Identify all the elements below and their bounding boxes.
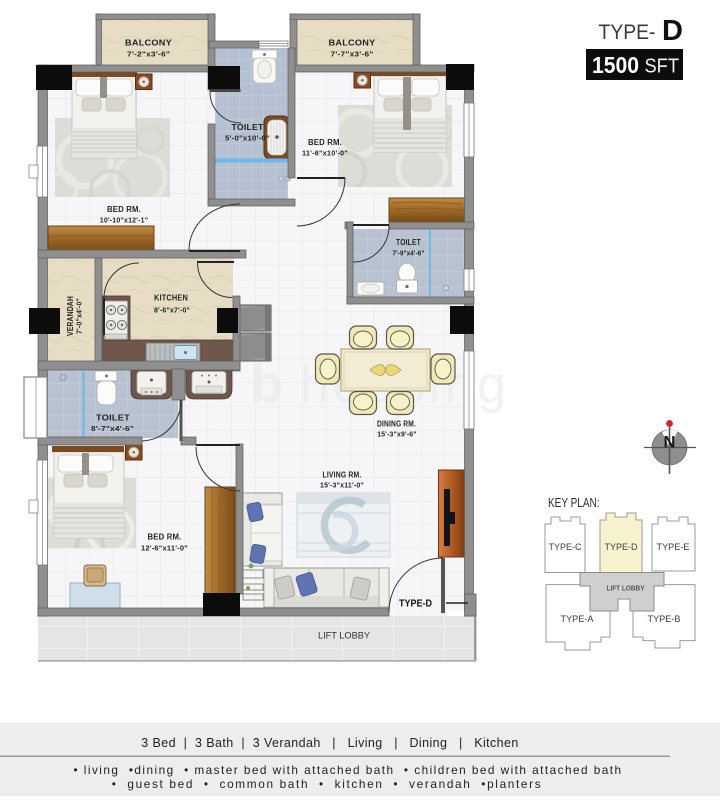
svg-text:3 Bed | 3 Bath | 3 Veranda: 3 Bed | 3 Bath | 3 Verandah | Living | D… <box>141 736 518 750</box>
svg-text:TOILET: TOILET <box>96 414 130 423</box>
svg-text:TYPE-A: TYPE-A <box>561 613 595 624</box>
svg-text:5'-0"x10'-0": 5'-0"x10'-0" <box>225 134 270 143</box>
svg-text:10'-10"x12'-1": 10'-10"x12'-1" <box>100 216 149 225</box>
svg-text:11'-6"x10'-0": 11'-6"x10'-0" <box>302 149 348 158</box>
svg-text:8'-6"x7'-0": 8'-6"x7'-0" <box>154 306 190 315</box>
svg-text:7'-0"x4'-0": 7'-0"x4'-0" <box>75 298 84 334</box>
svg-text:7'-2"x3'-6": 7'-2"x3'-6" <box>127 50 170 59</box>
svg-text:b: b <box>250 354 283 414</box>
svg-text:TOILET: TOILET <box>232 123 264 132</box>
svg-text:KEY PLAN:: KEY PLAN: <box>548 496 600 510</box>
svg-text:15'-3"x11'-0": 15'-3"x11'-0" <box>320 481 364 490</box>
svg-text:KITCHEN: KITCHEN <box>154 294 188 303</box>
svg-text:TYPE-: TYPE- <box>599 20 656 44</box>
svg-text:DINING RM.: DINING RM. <box>377 420 416 429</box>
svg-text:1500: 1500 <box>592 52 639 78</box>
svg-text:• living •dining • master be: • living •dining • master bed with attac… <box>74 763 623 777</box>
svg-text:7'-9"x4'-6": 7'-9"x4'-6" <box>393 249 425 258</box>
svg-text:TOILET: TOILET <box>396 238 421 247</box>
svg-text:D: D <box>662 15 683 47</box>
svg-text:TYPE-E: TYPE-E <box>657 541 690 552</box>
svg-text:15'-3"x9'-6": 15'-3"x9'-6" <box>377 430 417 439</box>
svg-text:TYPE-D: TYPE-D <box>605 541 638 552</box>
svg-text:SFT: SFT <box>645 56 680 78</box>
svg-text:LIFT LOBBY: LIFT LOBBY <box>607 584 645 593</box>
svg-text:BED RM.: BED RM. <box>148 533 182 542</box>
svg-text:7'-7"x3'-6": 7'-7"x3'-6" <box>331 50 374 59</box>
svg-text:12'-6"x11'-0": 12'-6"x11'-0" <box>141 544 188 553</box>
svg-text:LIVING RM.: LIVING RM. <box>323 471 362 480</box>
svg-text:BALCONY: BALCONY <box>329 39 377 48</box>
svg-text:8'-7"x4'-6": 8'-7"x4'-6" <box>91 424 134 433</box>
svg-text:• guest bed • common bath: • guest bed • common bath • kitchen • ve… <box>112 777 543 791</box>
svg-text:BED RM.: BED RM. <box>107 205 141 214</box>
svg-text:TYPE-C: TYPE-C <box>549 541 582 552</box>
svg-text:TYPE-B: TYPE-B <box>648 613 681 624</box>
svg-text:N: N <box>664 434 676 452</box>
svg-text:BED RM.: BED RM. <box>308 138 342 147</box>
svg-text:BALCONY: BALCONY <box>125 39 173 48</box>
svg-text:LIFT LOBBY: LIFT LOBBY <box>318 631 371 642</box>
svg-text:TYPE-D: TYPE-D <box>399 599 432 610</box>
